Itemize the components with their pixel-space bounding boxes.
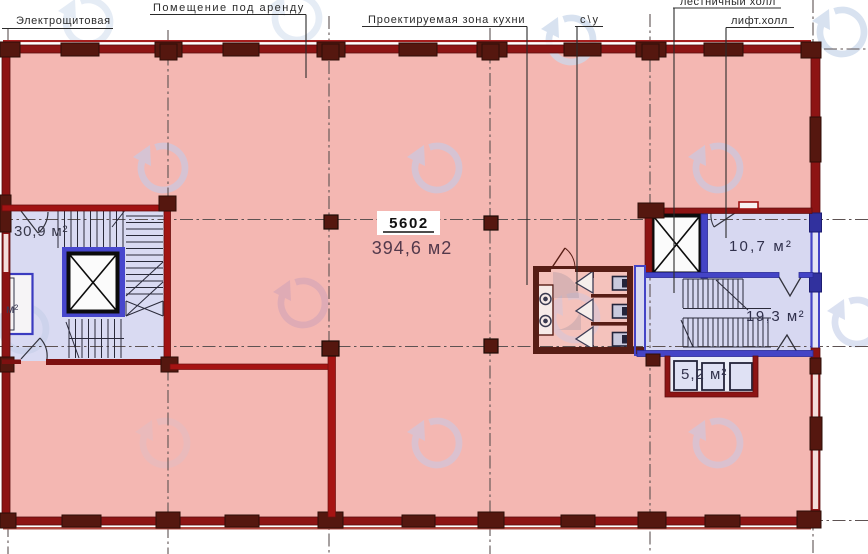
svg-text:Электрощитовая: Электрощитовая [16,15,111,27]
svg-text:10,7 м²: 10,7 м² [729,238,793,255]
svg-text:394,6 м2: 394,6 м2 [372,238,452,258]
svg-text:30,9 м²: 30,9 м² [14,223,68,240]
svg-text:5602: 5602 [389,215,429,232]
svg-text:Проектируемая зона кухни: Проектируемая зона кухни [368,14,525,26]
svg-text:лифт.холл: лифт.холл [731,15,788,27]
svg-text:лестничный холл: лестничный холл [680,0,776,8]
svg-text:5,2 м²: 5,2 м² [681,366,727,383]
svg-text:с\у: с\у [580,14,600,26]
svg-text:Помещение под аренду: Помещение под аренду [153,2,305,14]
svg-text:19,3 м²: 19,3 м² [746,308,805,325]
svg-text:м²: м² [6,302,18,316]
